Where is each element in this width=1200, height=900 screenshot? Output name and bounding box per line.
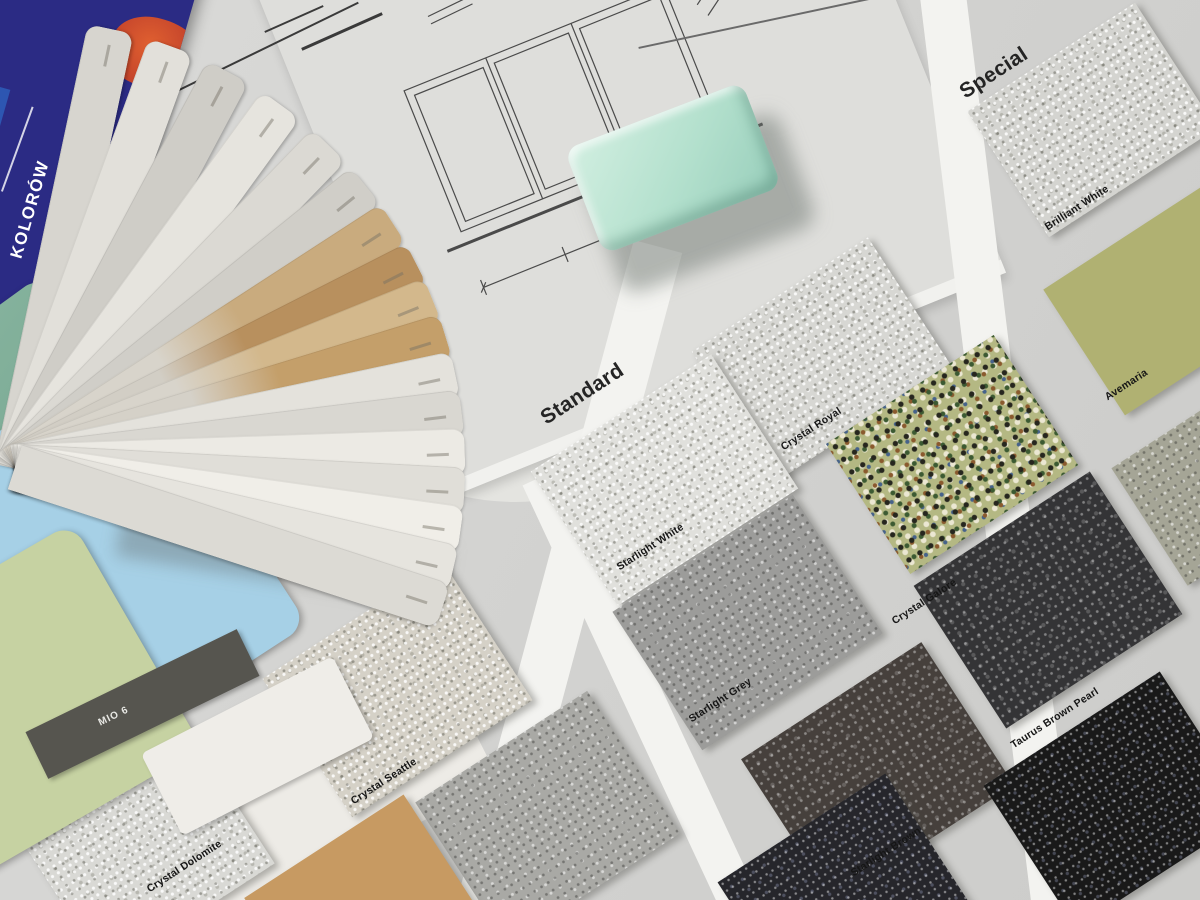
photo-scene: Standard Special Crystal Royal Starlight… [0,0,1200,900]
pencil-box-edge [0,0,9,328]
deck-code-label: MIO 6 [97,704,131,728]
